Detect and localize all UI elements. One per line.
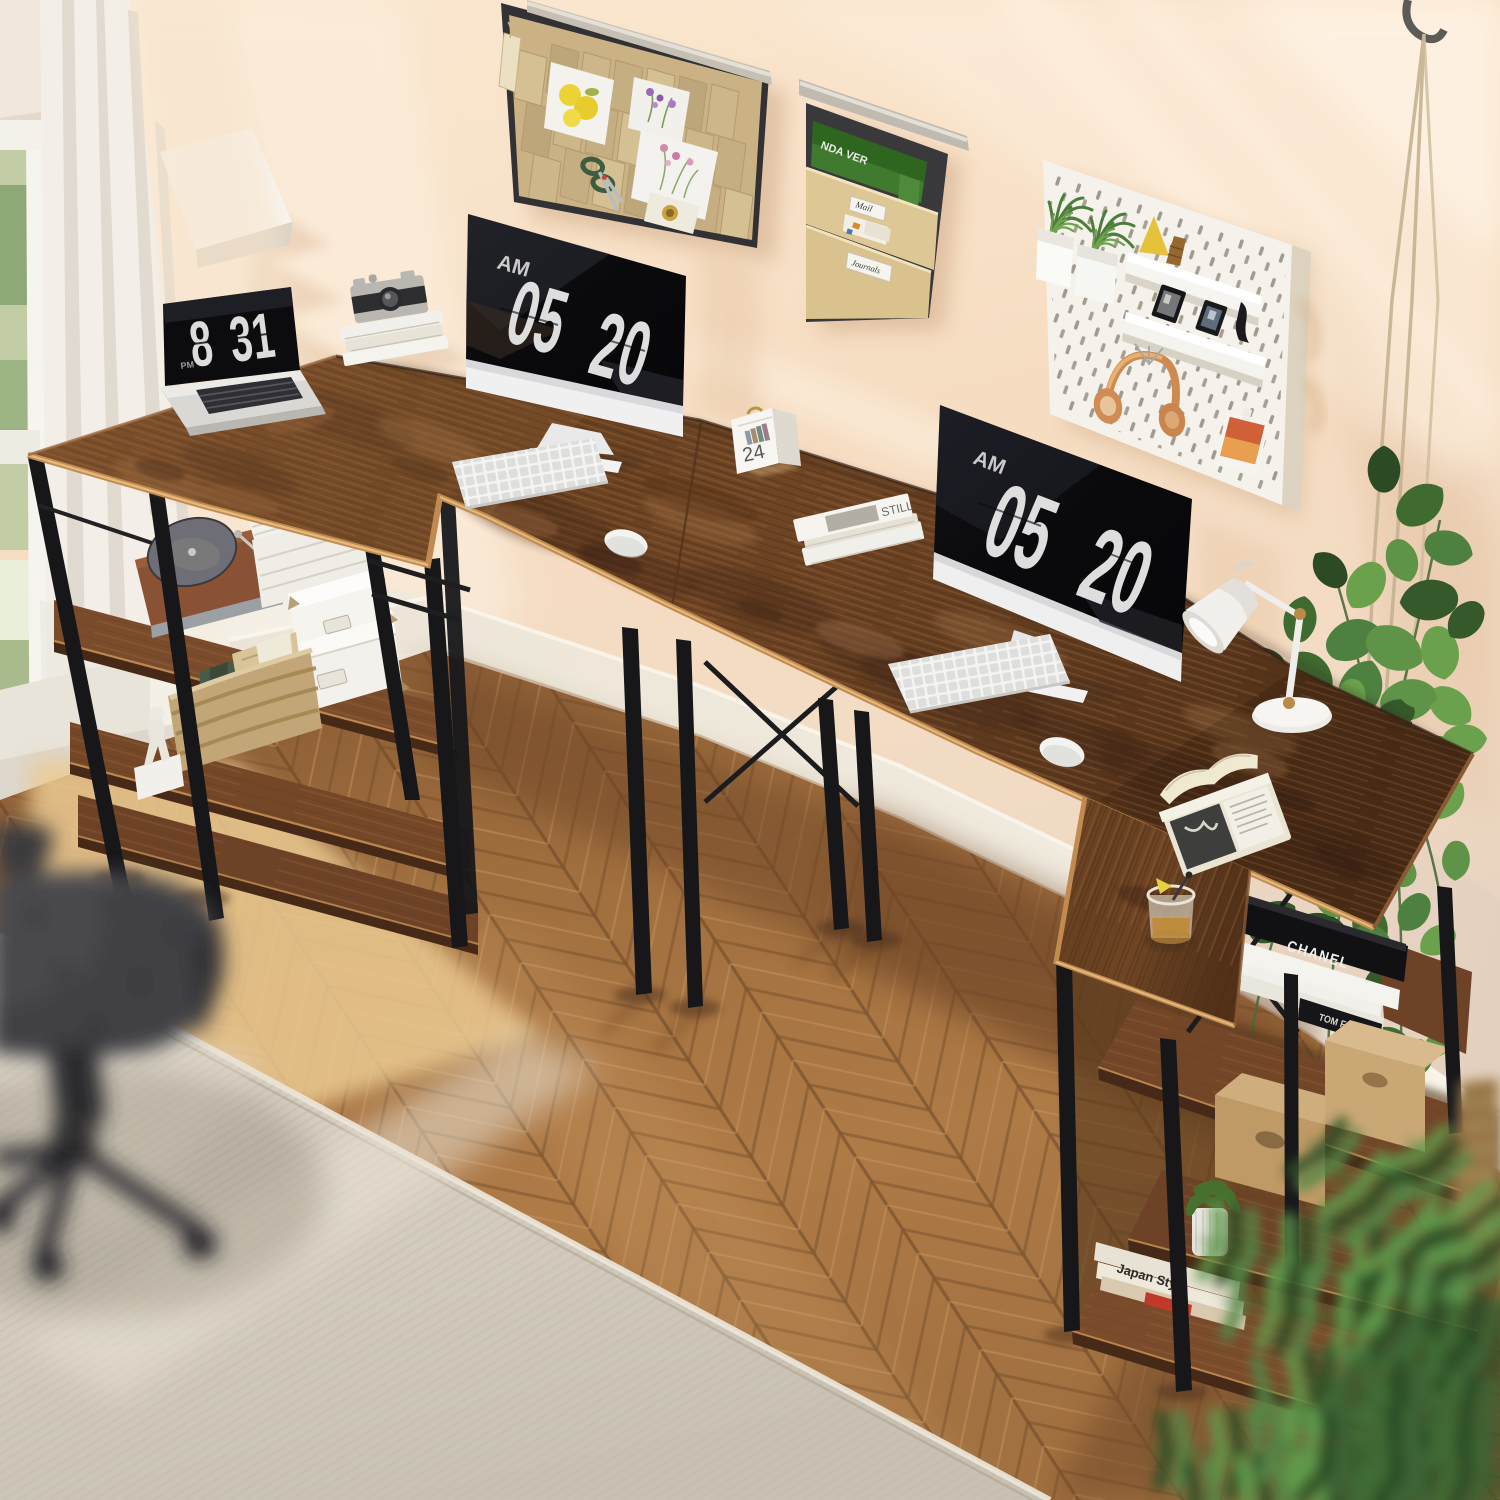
svg-text:PM: PM xyxy=(180,359,195,371)
svg-text:24: 24 xyxy=(740,441,766,467)
